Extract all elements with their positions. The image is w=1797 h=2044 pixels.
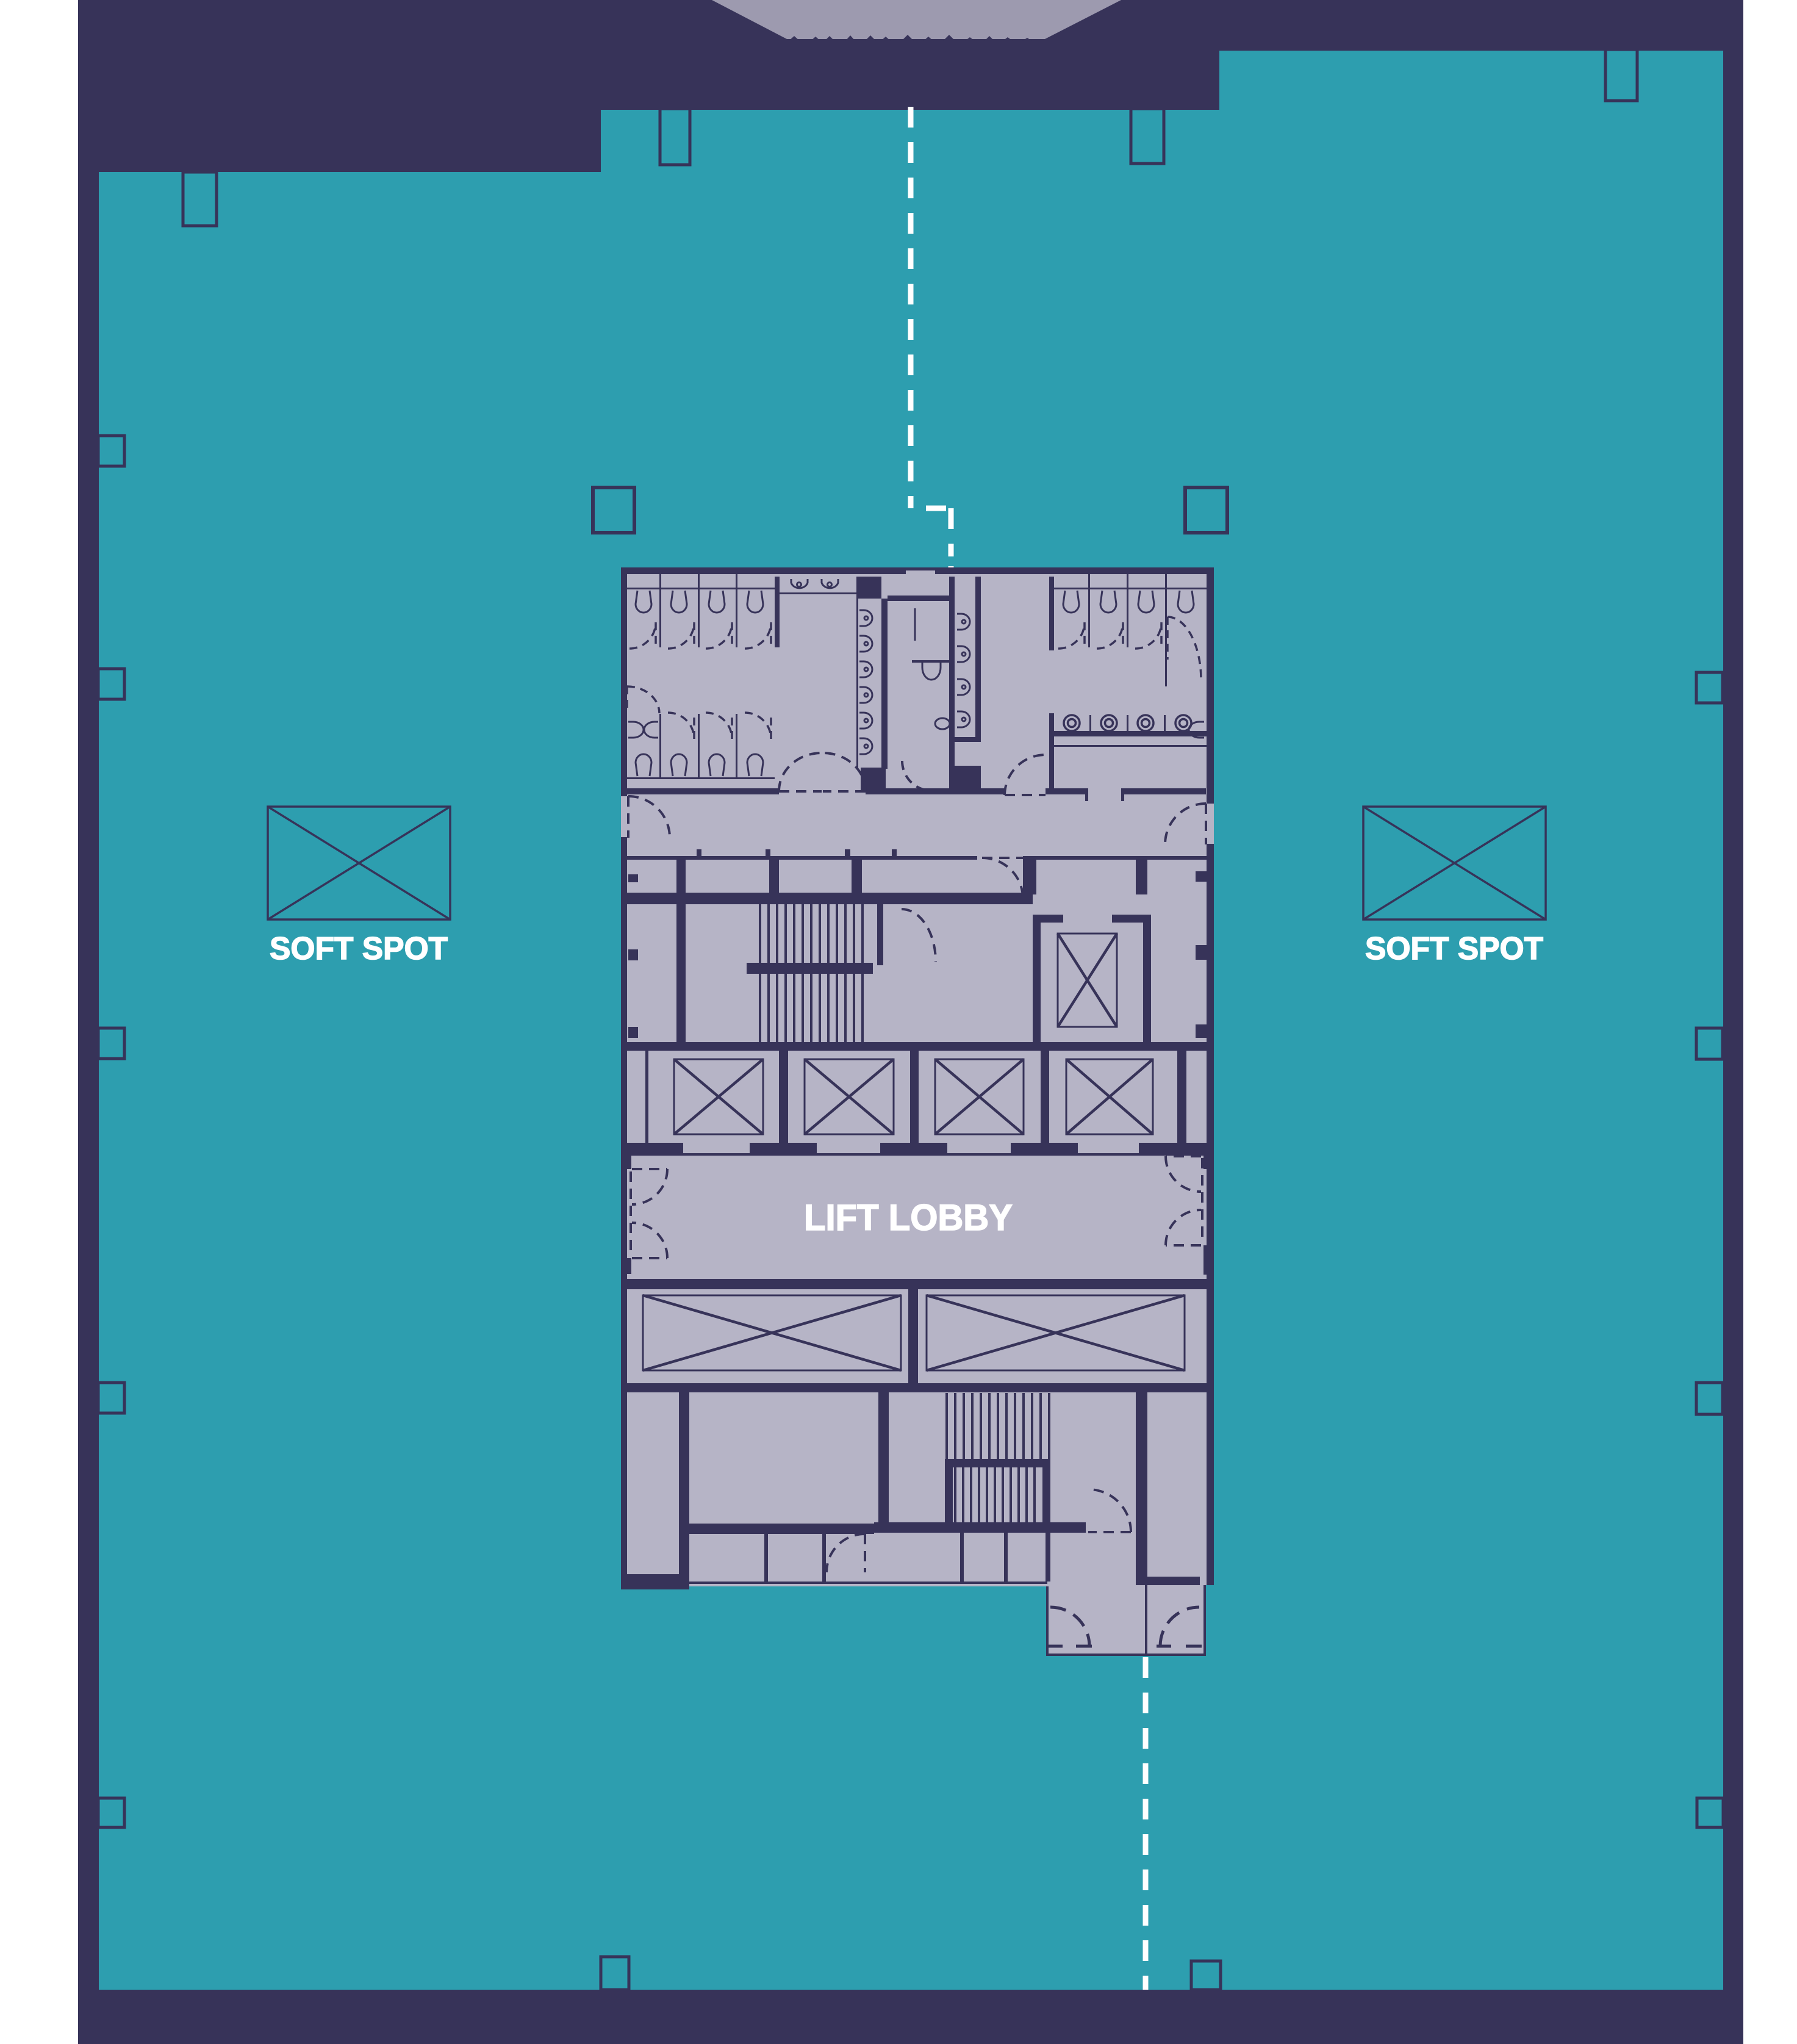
svg-text:LIFT LOBBY: LIFT LOBBY: [804, 1197, 1013, 1238]
svg-text:SOFT SPOT: SOFT SPOT: [270, 931, 448, 966]
svg-text:SOFT SPOT: SOFT SPOT: [1365, 931, 1543, 966]
